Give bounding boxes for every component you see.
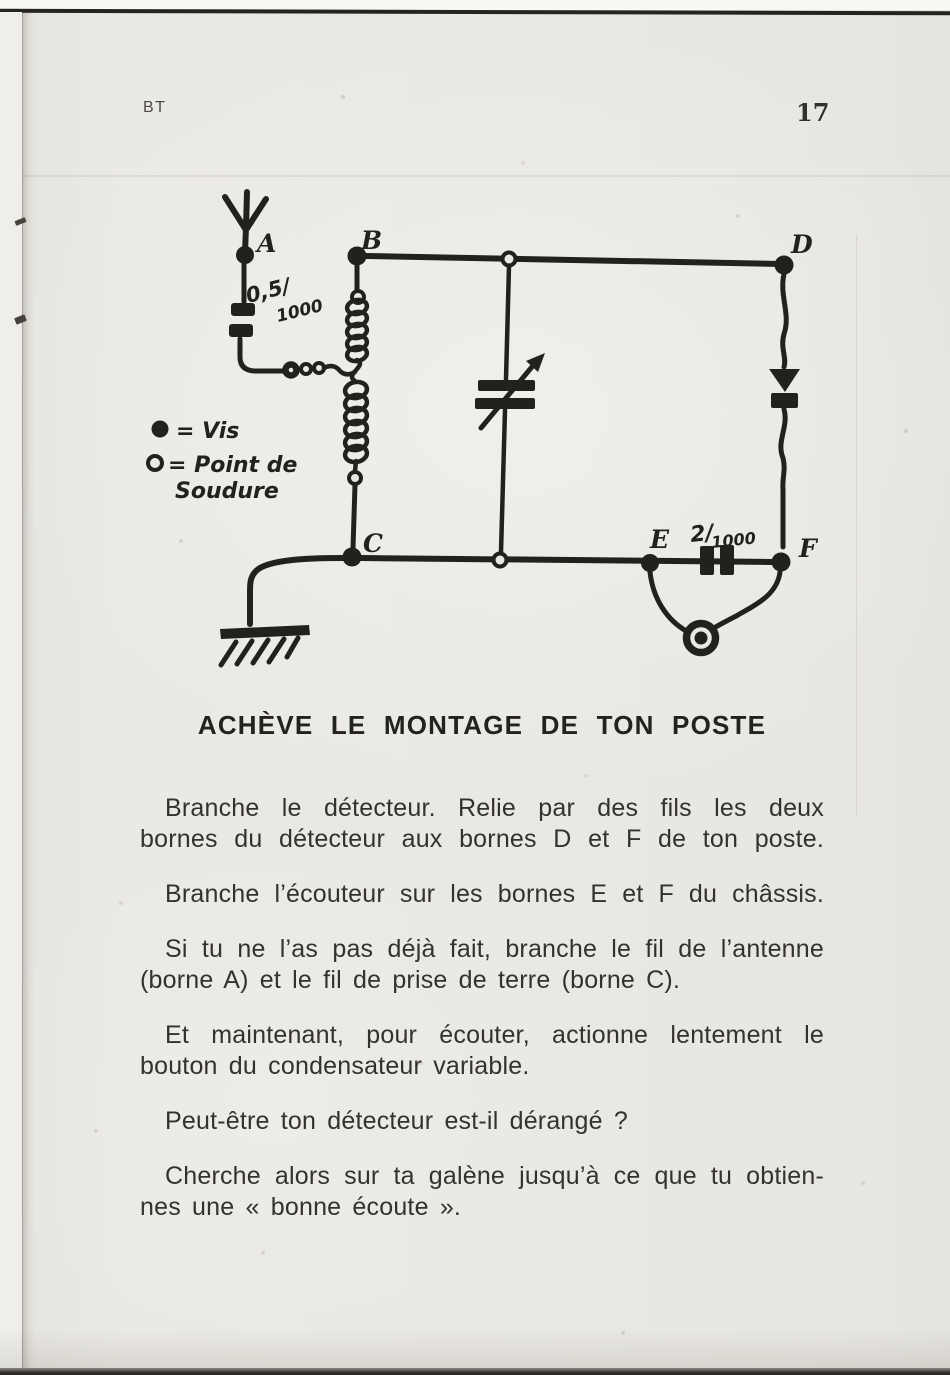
- solder-point: [349, 472, 361, 484]
- text-line: bouton du condensateur variable.: [140, 1051, 824, 1082]
- text-line: Et maintenant, pour écouter, actionne le…: [140, 1020, 824, 1051]
- phone-capacitor-value-2: 1000: [710, 528, 756, 552]
- ground-icon: [220, 558, 343, 665]
- node-label-e: E: [649, 525, 670, 554]
- scanned-page: BT 17 A 0,5/ 1000 B: [0, 0, 950, 1375]
- text-line: Peut-être ton détecteur est-il dérangé ?: [140, 1106, 824, 1137]
- section-title: ACHÈVE LE MONTAGE DE TON POSTE: [140, 710, 824, 741]
- node-label-d: D: [790, 230, 813, 259]
- legend-screw-label: = Vis: [176, 419, 239, 444]
- terminal-d: D: [775, 230, 814, 275]
- solder-point-icon: [148, 456, 162, 470]
- coil: [344, 265, 368, 548]
- node-label-b: B: [360, 226, 382, 255]
- legend-solder-label-2: Soudure: [175, 479, 279, 504]
- phone-capacitor: 2/ 1000: [689, 520, 757, 575]
- node-label-f: F: [798, 534, 819, 563]
- node-label-a: A: [255, 229, 276, 258]
- top-wire: [366, 256, 781, 264]
- text-line: Si tu ne l’as pas déjà fait, branche le …: [140, 934, 824, 965]
- paragraph: Cherche alors sur ta galène jusqu’à ce q…: [140, 1161, 824, 1223]
- scan-bottom-edge: [0, 1368, 950, 1375]
- paragraph: Si tu ne l’as pas déjà fait, branche le …: [140, 934, 824, 996]
- terminal-f: F: [772, 534, 820, 572]
- antenna-capacitor-value: 0,5/: [243, 273, 295, 308]
- text-line: bornes du détecteur aux bornes D et F de…: [140, 824, 824, 855]
- paragraph: Branche le détecteur. Relie par des fils…: [140, 793, 824, 855]
- text-line: (borne A) et le fil de prise de terre (b…: [140, 965, 824, 996]
- scan-left-margin: [0, 12, 22, 1368]
- variable-capacitor: [475, 266, 545, 552]
- paragraph: Branche l’écouteur sur les bornes E et F…: [140, 879, 824, 910]
- paragraph: Et maintenant, pour écouter, actionne le…: [140, 1020, 824, 1082]
- detector-diode: [769, 274, 800, 547]
- solder-point: [494, 554, 507, 567]
- text-line: Cherche alors sur ta galène jusqu’à ce q…: [140, 1161, 824, 1192]
- body-text: Branche le détecteur. Relie par des fils…: [140, 793, 824, 1247]
- screw-icon: [152, 421, 169, 438]
- diagram-legend: = Vis = Point de Soudure: [148, 419, 297, 504]
- tap-wire: [240, 339, 355, 376]
- terminal-a: A: [236, 229, 276, 264]
- text-line: Branche l’écouteur sur les bornes E et F…: [140, 879, 824, 910]
- variable-arrow: [481, 362, 536, 428]
- earphone-icon: [650, 572, 780, 653]
- circuit-diagram: A 0,5/ 1000 B: [0, 0, 950, 700]
- antenna-capacitor-value-2: 1000: [274, 296, 325, 327]
- legend-solder-label-1: = Point de: [168, 453, 297, 478]
- solder-point: [286, 365, 297, 376]
- scan-bottom-shadow: [0, 1328, 950, 1368]
- binding-crease: [22, 12, 35, 1368]
- text-line: nes une « bonne écoute ».: [140, 1192, 824, 1223]
- paragraph: Peut-être ton détecteur est-il dérangé ?: [140, 1106, 824, 1137]
- terminal-b: B: [348, 226, 383, 266]
- solder-point: [503, 253, 516, 266]
- solder-point: [301, 364, 311, 374]
- text-line: Branche le détecteur. Relie par des fils…: [140, 793, 824, 824]
- node-label-c: C: [363, 529, 383, 558]
- terminal-e: E: [641, 525, 670, 572]
